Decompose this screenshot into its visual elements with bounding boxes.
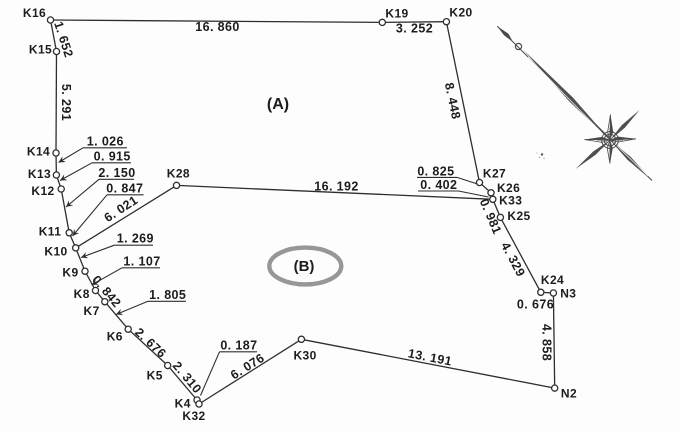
svg-text:K13: K13: [28, 167, 51, 181]
svg-text:2. 150: 2. 150: [98, 166, 135, 180]
svg-text:(B): (B): [294, 258, 315, 275]
svg-text:0. 187: 0. 187: [220, 339, 257, 353]
svg-text:N2: N2: [561, 387, 577, 401]
svg-text:1. 026: 1. 026: [87, 135, 124, 149]
svg-text:K7: K7: [84, 304, 100, 318]
svg-text:K9: K9: [62, 266, 78, 280]
svg-text:0. 915: 0. 915: [94, 150, 131, 164]
svg-text:0. 402: 0. 402: [420, 178, 457, 192]
svg-text:K32: K32: [182, 409, 205, 423]
svg-text:16. 860: 16. 860: [195, 20, 240, 34]
svg-text:K25: K25: [507, 209, 530, 223]
svg-text:K12: K12: [31, 184, 54, 198]
svg-text:(A): (A): [267, 96, 289, 113]
svg-text:K8: K8: [74, 287, 90, 301]
svg-text:K14: K14: [27, 144, 50, 158]
svg-text:K16: K16: [23, 6, 46, 20]
svg-text:K19: K19: [385, 6, 408, 20]
svg-text:K11: K11: [39, 225, 62, 239]
svg-text:4. 858: 4. 858: [539, 324, 553, 361]
svg-text:K27: K27: [483, 166, 506, 180]
svg-text:K10: K10: [44, 245, 67, 259]
svg-text:16. 192: 16. 192: [314, 180, 359, 194]
svg-text:K5: K5: [147, 369, 163, 383]
svg-text:0. 676: 0. 676: [517, 298, 554, 312]
svg-text:0. 825: 0. 825: [417, 164, 454, 178]
svg-text:K24: K24: [541, 273, 564, 287]
svg-text:K30: K30: [293, 349, 316, 363]
svg-text:5. 291: 5. 291: [59, 84, 73, 121]
svg-text:1. 805: 1. 805: [149, 288, 186, 302]
svg-text:0. 847: 0. 847: [106, 182, 143, 196]
svg-text:K6: K6: [107, 330, 123, 344]
svg-text:1. 107: 1. 107: [123, 255, 160, 269]
svg-text:1. 269: 1. 269: [117, 232, 154, 246]
svg-text:N3: N3: [560, 287, 576, 301]
svg-text:3. 252: 3. 252: [396, 22, 433, 36]
svg-text:K33: K33: [499, 193, 522, 207]
svg-text:K28: K28: [167, 166, 190, 180]
svg-text:K20: K20: [449, 5, 472, 19]
svg-text:K15: K15: [29, 43, 52, 57]
